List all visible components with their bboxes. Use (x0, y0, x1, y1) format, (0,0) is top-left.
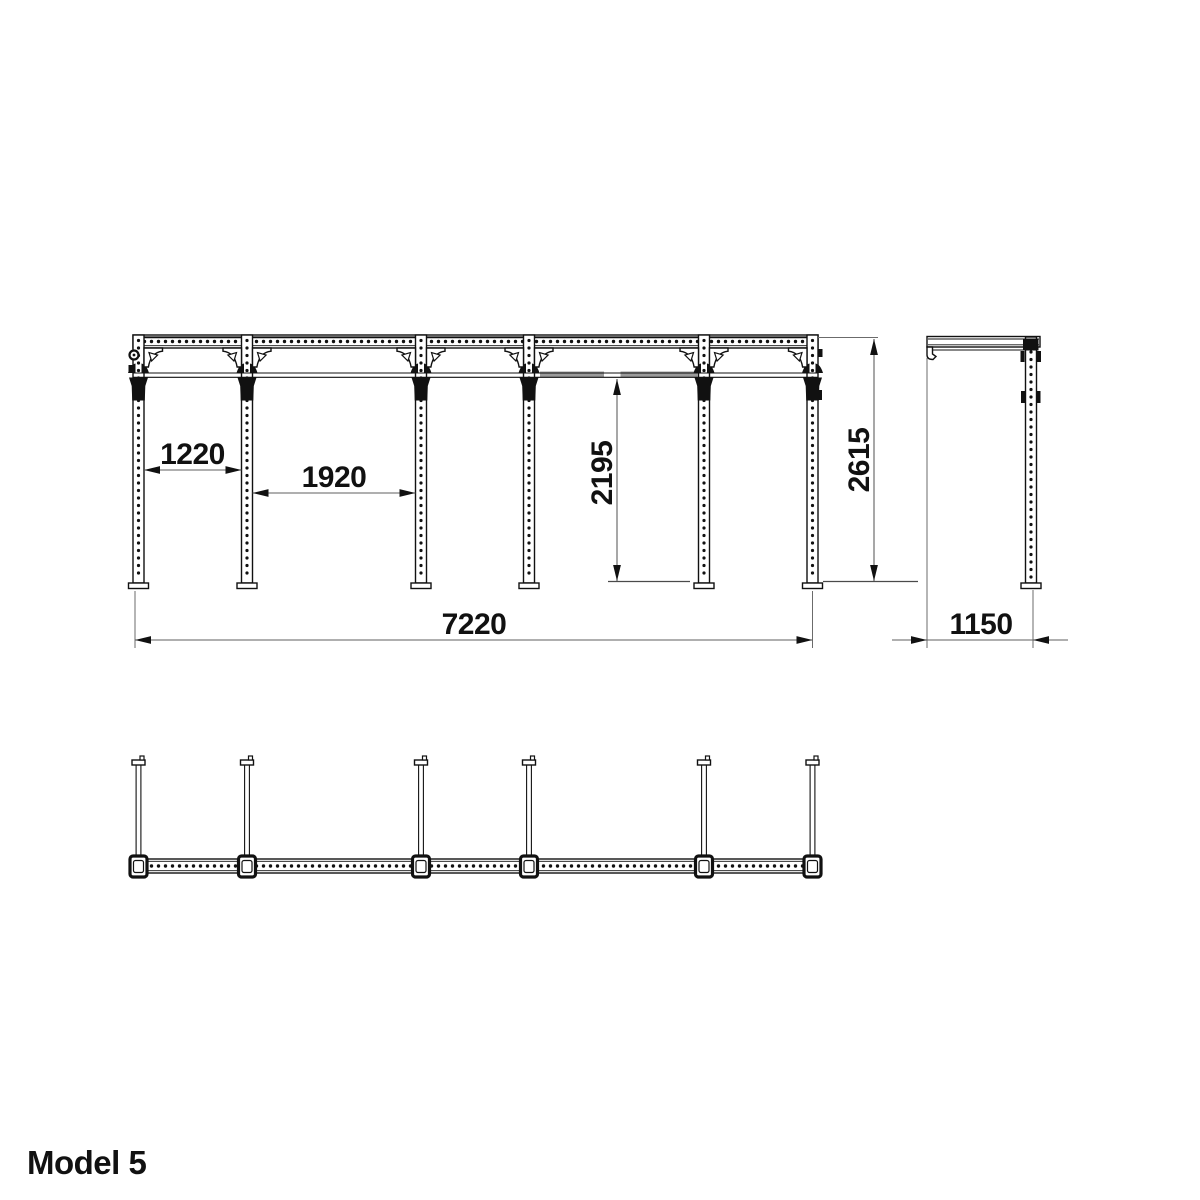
dim-text-overall-depth: 1150 (949, 608, 1012, 641)
dim-text-overall-height: 2615 (843, 428, 876, 493)
dimension-2615: 2615 (818, 338, 918, 582)
front-elevation-view (128, 335, 823, 589)
dim-text-bar-height: 2195 (586, 441, 619, 506)
side-post (1021, 337, 1042, 589)
side-elevation-view (927, 337, 1041, 589)
dim-text-bay1: 1220 (160, 438, 225, 471)
dimension-1220: 1220 (144, 438, 242, 474)
front-top-beam (133, 335, 818, 348)
front-base-plates (129, 583, 823, 589)
dim-text-bay2: 1920 (302, 461, 367, 494)
model-title: Model 5 (27, 1144, 146, 1181)
dimension-2195: 2195 (586, 379, 690, 582)
front-pullup-bar (133, 372, 818, 378)
plan-side-arms (132, 756, 819, 857)
dimension-1920: 1920 (253, 461, 416, 497)
front-bar-clamps (128, 364, 823, 401)
plan-main-beam (133, 859, 818, 873)
rig-dimension-drawing: 1220 1920 2195 2615 7220 1150 (0, 0, 1200, 1200)
dim-text-overall-width: 7220 (442, 608, 507, 641)
side-beam-end-bracket (927, 347, 936, 360)
technical-drawing-page: 1220 1920 2195 2615 7220 1150 (0, 0, 1200, 1200)
dimension-7220: 7220 (135, 591, 813, 648)
plan-view (130, 756, 821, 877)
dimension-1150: 1150 (892, 358, 1068, 648)
